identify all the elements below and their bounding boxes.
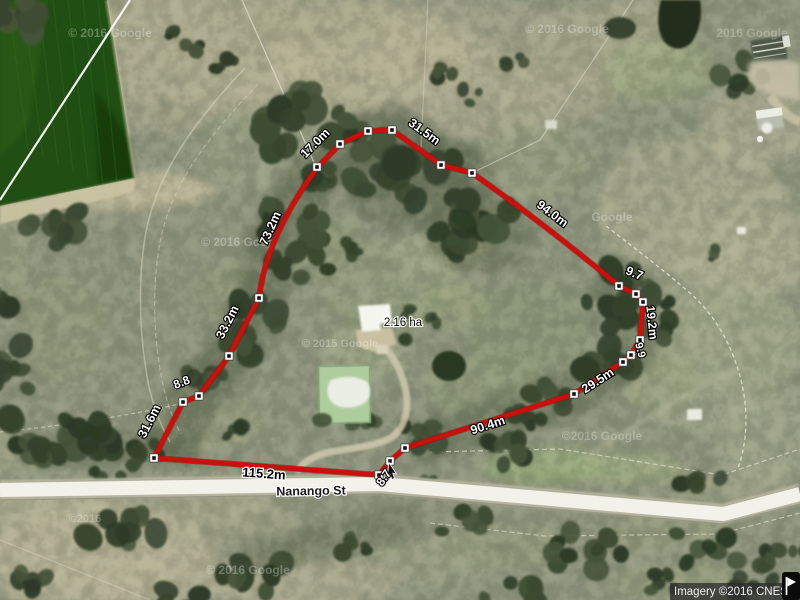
svg-text:115.2m: 115.2m	[242, 465, 286, 483]
svg-text:© 2016 Google: © 2016 Google	[68, 26, 152, 40]
svg-text:©2016: ©2016	[69, 513, 102, 525]
svg-text:Google: Google	[591, 210, 633, 224]
svg-text:2016 Google: 2016 Google	[716, 26, 788, 40]
svg-text:2.16 ha: 2.16 ha	[384, 317, 423, 329]
svg-text:© 2016 Google: © 2016 Google	[525, 22, 609, 36]
svg-text:© 2015 Google: © 2015 Google	[302, 338, 379, 350]
svg-text:Nanango St: Nanango St	[276, 483, 347, 498]
svg-text:© 2016 Google: © 2016 Google	[206, 563, 290, 577]
svg-text:Imagery ©2016 CNES / A: Imagery ©2016 CNES / A	[674, 586, 800, 598]
svg-text:©2016 Google: ©2016 Google	[562, 429, 643, 443]
